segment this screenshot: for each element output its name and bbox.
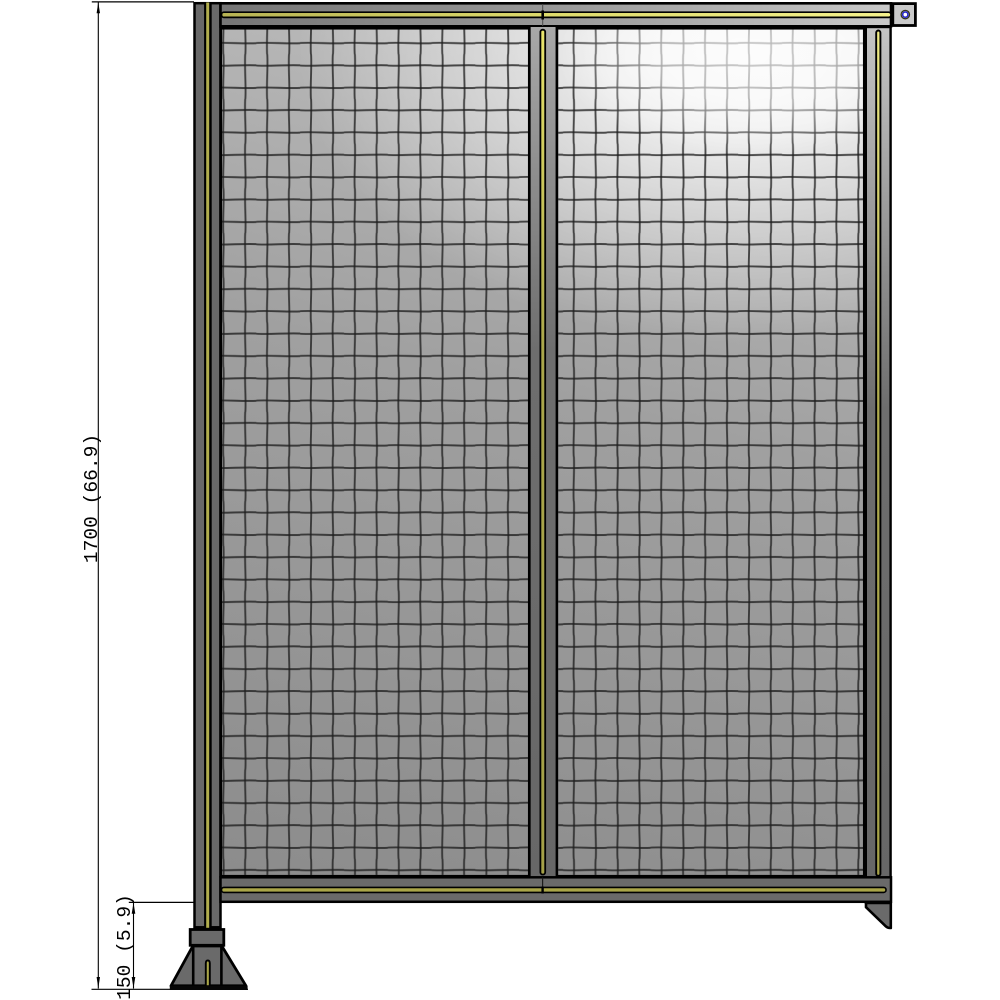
svg-text:1700 (66.9): 1700 (66.9) [81,434,103,563]
svg-text:150 (5.9): 150 (5.9) [114,894,136,1000]
